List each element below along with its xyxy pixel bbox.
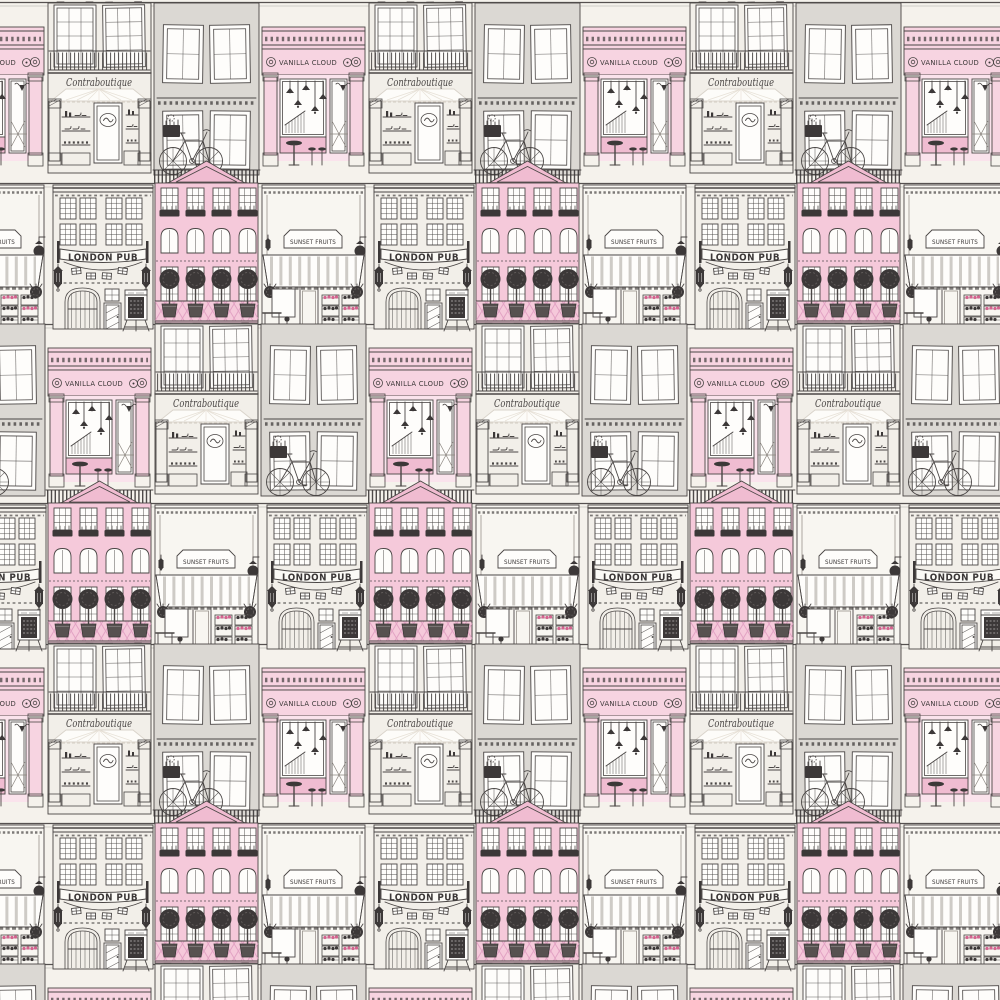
band-2-street	[0, 481, 1000, 651]
band-3-shops	[0, 643, 1000, 816]
fabric-pattern: Contraboutique	[0, 0, 1000, 1000]
pattern-canvas: Contraboutique	[0, 0, 1000, 1000]
band-1-street	[0, 161, 1000, 331]
band-3-street	[0, 801, 1000, 971]
band-1-shops	[0, 2, 1000, 175]
